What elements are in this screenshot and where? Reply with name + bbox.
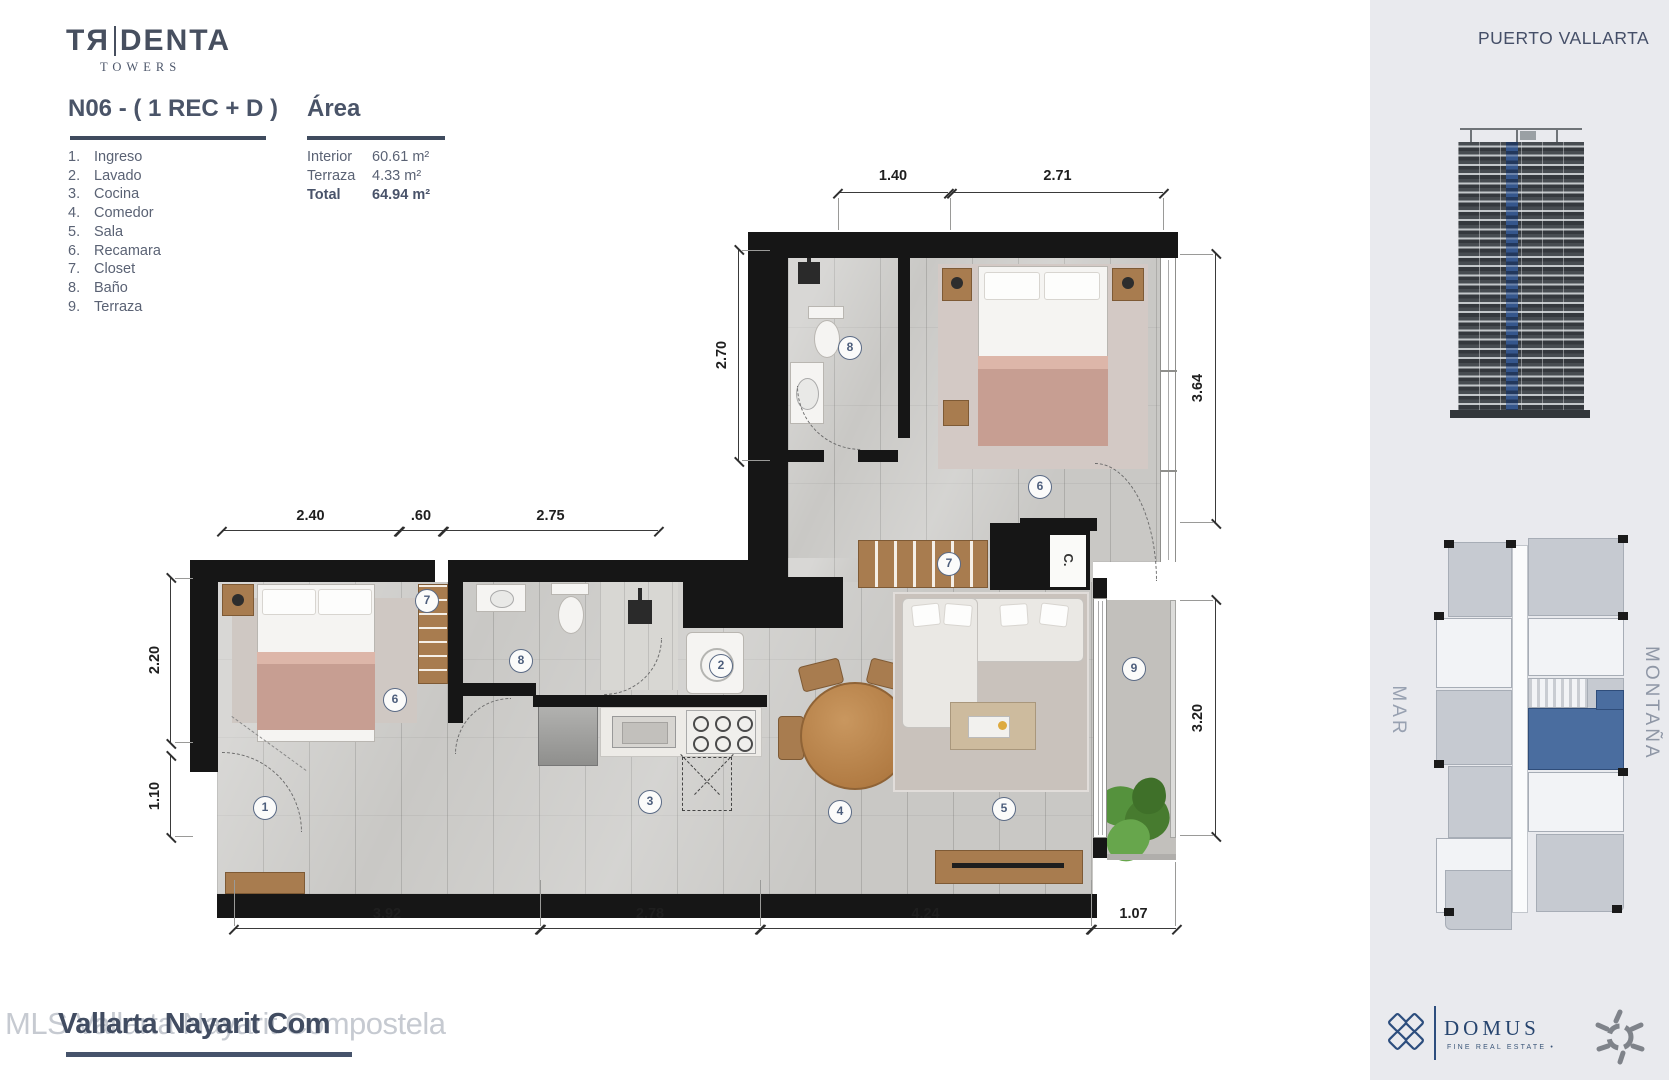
legend-item: 2.Lavado xyxy=(68,167,161,186)
keyplan-label-mountain: MONTAÑA xyxy=(1640,646,1662,756)
domus-logo-icon xyxy=(1385,1010,1427,1054)
ext-line xyxy=(760,880,761,926)
dim-label: 4.24 xyxy=(760,906,1091,922)
wall xyxy=(1020,518,1097,531)
terrace-edge xyxy=(1107,854,1176,860)
area-table: Interior60.61 m² Terraza4.33 m² Total64.… xyxy=(307,148,430,205)
ext-line xyxy=(742,250,770,251)
ext-line xyxy=(1175,862,1176,926)
dim-line xyxy=(540,928,760,929)
dim-label: 3.92 xyxy=(234,906,540,922)
keyplan-unit-highlight xyxy=(1528,708,1624,770)
wall xyxy=(448,568,463,723)
pillow xyxy=(984,272,1040,300)
entry-threshold xyxy=(225,872,305,894)
ext-line xyxy=(1180,835,1213,836)
wall xyxy=(190,748,218,772)
tower-unit-stack-highlight xyxy=(1506,142,1518,410)
dim-line xyxy=(222,530,399,531)
area-row-total: Total64.94 m² xyxy=(307,186,430,205)
window-band xyxy=(1160,258,1176,562)
ext-line xyxy=(540,880,541,926)
area-title: Área xyxy=(307,95,360,123)
dim-label: 1.10 xyxy=(147,761,163,831)
pillow xyxy=(1044,272,1100,300)
dim-label: 1.40 xyxy=(838,168,948,184)
area-row: Interior60.61 m² xyxy=(307,148,430,167)
wall xyxy=(190,568,218,753)
wall xyxy=(1093,836,1107,858)
legend-item: 4.Comedor xyxy=(68,204,161,223)
closet-shelf xyxy=(858,540,988,588)
dim-line xyxy=(760,928,1091,929)
tray-item xyxy=(998,721,1007,730)
lamp-icon xyxy=(232,594,244,606)
room-marker: 9 xyxy=(1122,657,1146,681)
dim-line xyxy=(170,578,171,743)
toilet-tank-upper xyxy=(808,306,844,319)
dim-line xyxy=(443,530,658,531)
dim-line xyxy=(399,530,443,531)
stove xyxy=(686,710,756,754)
pillow xyxy=(318,589,372,615)
brand-logo-left: TЯ xyxy=(66,24,110,58)
dim-line xyxy=(234,928,540,929)
legend-item: 8.Baño xyxy=(68,279,161,298)
emblem-logo-icon xyxy=(1592,1008,1648,1066)
dim-line xyxy=(170,756,171,837)
wall xyxy=(1093,578,1107,600)
ext-line xyxy=(1180,600,1213,601)
room-marker: 7 xyxy=(937,552,961,576)
shower-head xyxy=(798,262,820,284)
keyplan-label-sea: MAR xyxy=(1387,676,1409,746)
toilet-bowl-upper xyxy=(814,320,840,358)
lamp-icon xyxy=(951,277,963,289)
sliding-door xyxy=(1093,598,1107,838)
pillow xyxy=(943,603,973,627)
legend-item: 9.Terraza xyxy=(68,298,161,317)
ext-line xyxy=(1091,880,1092,926)
room-marker: 6 xyxy=(1028,475,1052,499)
domus-logo-name: DOMUS xyxy=(1444,1016,1540,1041)
ext-line xyxy=(1163,198,1164,230)
toilet-bowl-lower xyxy=(558,596,584,634)
city-label: PUERTO VALLARTA xyxy=(1478,28,1658,49)
domus-logo-tagline: FINE REAL ESTATE • xyxy=(1447,1044,1555,1051)
dim-line xyxy=(1215,254,1216,523)
area-row: Terraza4.33 m² xyxy=(307,167,430,186)
toilet-tank-lower xyxy=(551,583,589,595)
dim-line xyxy=(1215,600,1216,836)
basin-lower xyxy=(490,590,514,608)
pillow xyxy=(262,589,316,615)
room-marker: 4 xyxy=(828,800,852,824)
ext-line xyxy=(742,460,770,461)
fridge xyxy=(538,700,598,766)
dim-line xyxy=(838,192,948,193)
dim-label: 1.07 xyxy=(1091,906,1176,922)
wall xyxy=(748,232,1178,258)
wall xyxy=(898,258,910,438)
tower-illustration xyxy=(1450,124,1590,420)
dim-label: 2.70 xyxy=(714,320,730,390)
blanket-fold xyxy=(257,652,375,664)
dim-label: 2.20 xyxy=(147,625,163,695)
brand-sub: TOWERS xyxy=(100,60,181,75)
floorplan-sheet: TЯ DENTA TOWERS N06 - ( 1 REC + D ) Área… xyxy=(0,0,1669,1080)
brand-logo-divider xyxy=(114,26,116,56)
blanket-fold xyxy=(978,356,1108,369)
lamp-icon xyxy=(1122,277,1134,289)
room-marker: 2 xyxy=(709,654,733,678)
dim-line xyxy=(738,250,739,461)
dim-label: 2.75 xyxy=(443,508,658,524)
brand-logo-right: DENTA xyxy=(120,24,231,58)
legend-item: 5.Sala xyxy=(68,223,161,242)
keyplan-unit-highlight xyxy=(1596,690,1624,710)
ext-line xyxy=(234,880,235,926)
pillow xyxy=(999,603,1028,627)
wall xyxy=(190,560,435,582)
domus-logo-divider xyxy=(1434,1006,1436,1060)
watermark-bold: Vallarta Nayarit Com xyxy=(58,1008,330,1041)
shower-head xyxy=(628,600,652,624)
ext-line xyxy=(175,836,193,837)
room-marker: 6 xyxy=(383,688,407,712)
legend-item: 3.Cocina xyxy=(68,185,161,204)
room-marker: 1 xyxy=(253,796,277,820)
closet-label: C. xyxy=(1060,545,1076,575)
room-marker: 3 xyxy=(638,790,662,814)
room-marker: 5 xyxy=(992,797,1016,821)
room-marker: 7 xyxy=(415,589,439,613)
room-marker: 8 xyxy=(838,336,862,360)
stool xyxy=(943,400,969,426)
wall xyxy=(448,560,748,582)
wall xyxy=(748,232,788,577)
terrace-rail xyxy=(1170,600,1176,838)
dim-label: 3.20 xyxy=(1190,683,1206,753)
dim-line xyxy=(1091,928,1176,929)
wall xyxy=(533,695,767,707)
unit-title: N06 - ( 1 REC + D ) xyxy=(68,95,278,123)
ext-line xyxy=(175,578,193,579)
wall xyxy=(683,577,843,628)
brand-logo: TЯ DENTA xyxy=(66,24,231,58)
legend-item: 7.Closet xyxy=(68,260,161,279)
pillow xyxy=(1039,602,1069,627)
tv-icon xyxy=(952,863,1064,868)
room-marker: 8 xyxy=(509,649,533,673)
area-title-underline xyxy=(307,136,445,140)
pillow xyxy=(911,603,941,628)
wall xyxy=(858,450,898,462)
legend-item: 6.Recamara xyxy=(68,242,161,261)
dim-label: 2.40 xyxy=(222,508,399,524)
dim-label: 2.71 xyxy=(952,168,1163,184)
ext-line xyxy=(175,742,193,743)
dim-line xyxy=(952,192,1163,193)
pantry-dashed-outline xyxy=(682,757,732,811)
wall xyxy=(788,450,824,462)
unit-title-underline xyxy=(70,136,266,140)
ext-line xyxy=(1180,522,1213,523)
dim-label: 3.64 xyxy=(1190,353,1206,423)
ext-line xyxy=(1180,254,1213,255)
blanket-upper xyxy=(978,356,1108,446)
sink-basin xyxy=(622,722,668,744)
dim-label: 2.78 xyxy=(540,906,760,922)
ext-line xyxy=(950,198,951,230)
room-legend: 1.Ingreso 2.Lavado 3.Cocina 4.Comedor 5.… xyxy=(68,148,161,316)
keyplan xyxy=(1428,525,1628,945)
ext-line xyxy=(838,198,839,230)
watermark-underline xyxy=(66,1052,352,1057)
legend-item: 1.Ingreso xyxy=(68,148,161,167)
shower-arm xyxy=(638,588,642,602)
